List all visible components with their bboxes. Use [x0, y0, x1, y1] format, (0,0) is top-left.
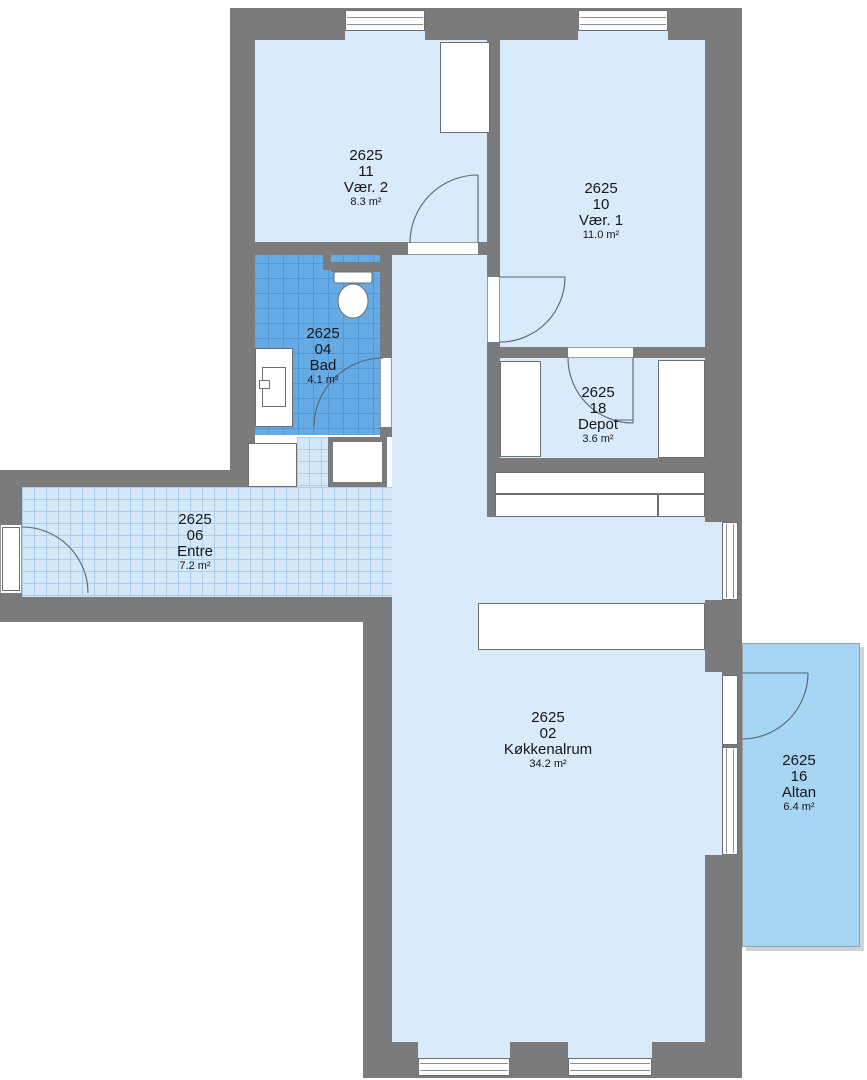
room-code: 2625: [504, 710, 592, 726]
room-name: Køkkenalrum: [504, 742, 592, 758]
window-top-right: [578, 10, 668, 31]
room-unit: 16: [782, 769, 816, 785]
wardrobe-vaer2: [440, 42, 490, 133]
room-code: 2625: [306, 326, 339, 342]
floor-kitchen: [392, 517, 705, 1042]
room-area: 34.2 m²: [504, 758, 592, 771]
window-sill-kitchen-east: [705, 522, 722, 600]
door-opening-depot: [568, 347, 633, 358]
room-label-altan: 2625 16 Altan 6.4 m²: [782, 753, 816, 814]
room-code: 2625: [579, 181, 623, 197]
window-bottom-right: [568, 1058, 652, 1076]
window-top-left: [345, 10, 425, 31]
room-name: Bad: [306, 358, 339, 374]
room-label-vaer1: 2625 10 Vær. 1 11.0 m²: [579, 181, 623, 242]
floor-vaer1-lower: [500, 242, 705, 347]
room-label-depot: 2625 18 Depot 3.6 m²: [578, 385, 618, 446]
window-bottom-left: [418, 1058, 510, 1076]
room-unit: 11: [344, 164, 388, 180]
window-balcony: [722, 747, 738, 855]
kitchen-counter-upper: [495, 472, 705, 494]
window-sill-bottom-right: [568, 1042, 652, 1058]
room-code: 2625: [578, 385, 618, 401]
room-name: Vær. 1: [579, 213, 623, 229]
sink-tap-icon: [259, 380, 270, 389]
wall-entre-bottom: [0, 597, 392, 622]
room-label-koekkenalrum: 2625 02 Køkkenalrum 34.2 m²: [504, 710, 592, 771]
room-area: 3.6 m²: [578, 433, 618, 446]
door-opening-vaer1: [487, 277, 500, 342]
duct-shaft: [328, 437, 387, 487]
floor-corridor: [392, 255, 487, 517]
room-code: 2625: [177, 512, 213, 528]
door-opening-vaer2: [408, 242, 478, 255]
room-label-bad: 2625 04 Bad 4.1 m²: [306, 326, 339, 387]
kitchen-counter-lower-right: [658, 494, 705, 517]
room-name: Entre: [177, 544, 213, 560]
kitchen-counter-lower-left: [495, 494, 658, 517]
room-name: Vær. 2: [344, 180, 388, 196]
wall-bad-notch-vertical: [323, 255, 331, 270]
floor-plan: 2625 11 Vær. 2 8.3 m² 2625 10 Vær. 1 11.…: [0, 0, 867, 1080]
window-sill-balcony: [705, 747, 722, 855]
wall-kitchen-left: [363, 597, 392, 1078]
wall-bad-notch-horizontal: [331, 262, 380, 272]
room-unit: 06: [177, 528, 213, 544]
room-area: 8.3 m²: [344, 196, 388, 209]
room-unit: 04: [306, 342, 339, 358]
room-label-entre: 2625 06 Entre 7.2 m²: [177, 512, 213, 573]
room-name: Depot: [578, 417, 618, 433]
room-code: 2625: [782, 753, 816, 769]
window-kitchen-east: [722, 522, 738, 600]
depot-shelf-left: [500, 361, 541, 457]
room-code: 2625: [344, 148, 388, 164]
room-area: 7.2 m²: [177, 560, 213, 573]
room-label-vaer2: 2625 11 Vær. 2 8.3 m²: [344, 148, 388, 209]
window-sill-top-left: [345, 31, 425, 40]
room-unit: 10: [579, 197, 623, 213]
door-opening-bad: [380, 358, 392, 427]
room-area: 11.0 m²: [579, 229, 623, 242]
depot-shelf-right: [658, 360, 705, 458]
entre-niche: [248, 443, 297, 487]
wall-counter-stub: [487, 472, 495, 517]
room-name: Altan: [782, 785, 816, 801]
kitchen-island: [478, 603, 705, 650]
entry-door-leaf: [2, 527, 20, 591]
window-sill-top-right: [578, 31, 668, 40]
wall-depot-bottom: [487, 458, 742, 472]
door-sill-balcony: [705, 672, 722, 747]
room-area: 4.1 m²: [306, 374, 339, 387]
floor-entre-passage-tiles: [297, 437, 330, 487]
room-unit: 18: [578, 401, 618, 417]
wall-entre-top: [0, 470, 255, 487]
room-area: 6.4 m²: [782, 801, 816, 814]
room-unit: 02: [504, 726, 592, 742]
balcony-door-leaf: [722, 675, 738, 745]
window-sill-bottom-left: [418, 1042, 510, 1058]
